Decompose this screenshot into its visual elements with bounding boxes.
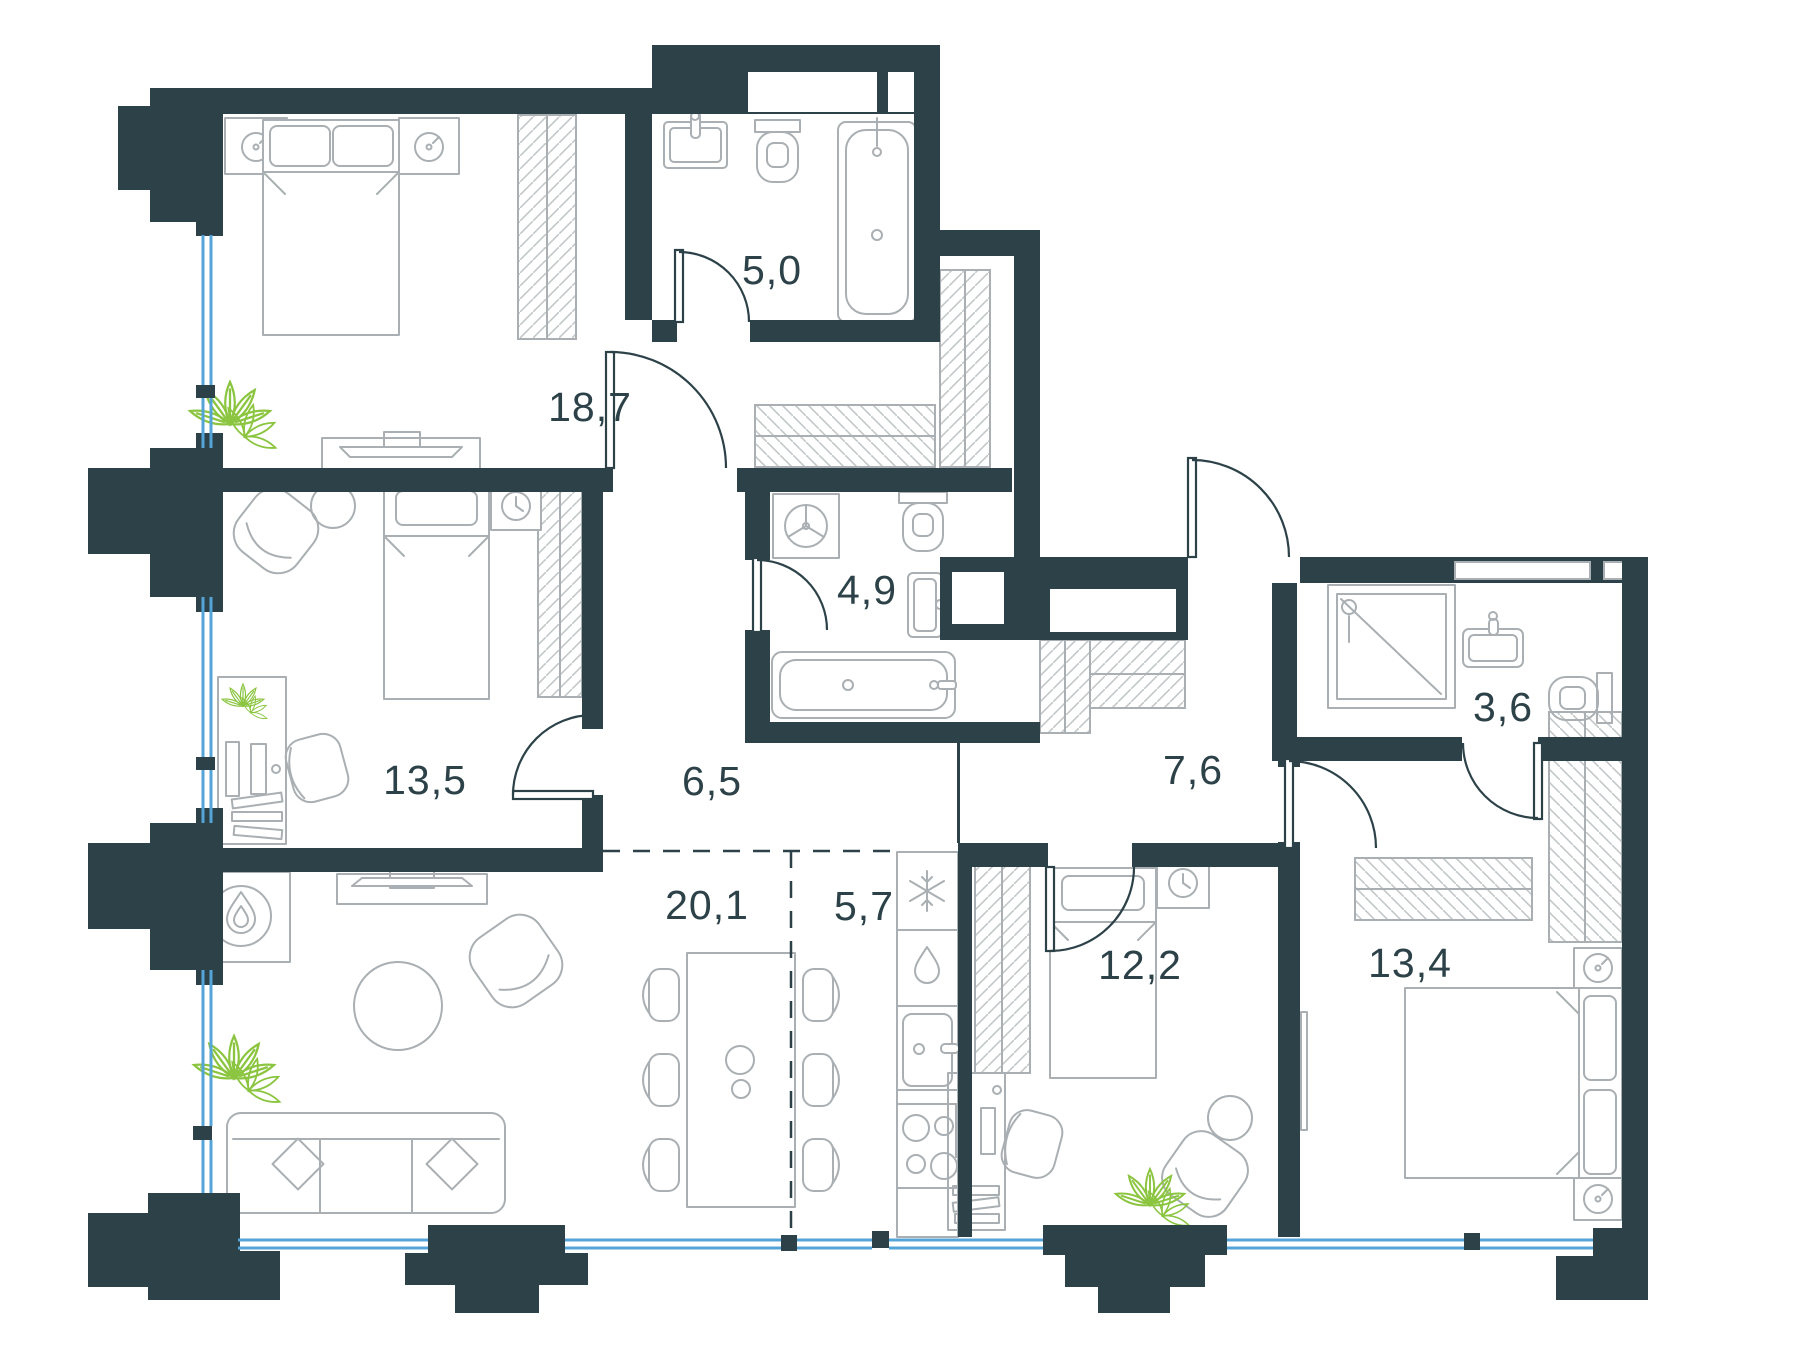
pillar xyxy=(88,433,223,612)
tv-dresser xyxy=(337,868,487,904)
dining-table xyxy=(687,953,795,1207)
wardrobe-master-closet xyxy=(755,270,990,467)
room-area-label-bedroom-right: 13,4 xyxy=(1368,940,1452,986)
bathtub-icon xyxy=(772,652,956,718)
coffee-table xyxy=(354,962,442,1050)
plant-icon xyxy=(1115,1169,1201,1233)
toilet-icon xyxy=(899,492,947,551)
room-area-label-bathroom-guest: 3,6 xyxy=(1473,684,1533,730)
bathroom-guest-fixtures xyxy=(1328,585,1612,723)
door-bathroom-main xyxy=(745,552,827,638)
room-area-label-bedroom-left: 13,5 xyxy=(383,757,467,803)
bed-double xyxy=(263,120,399,335)
bedroom-right-furniture xyxy=(1301,948,1622,1220)
pillar xyxy=(118,88,223,236)
room-area-label-bedroom-middle: 12,2 xyxy=(1098,942,1182,988)
door-bedroom-left xyxy=(513,715,603,802)
room-area-label-bathroom-main: 4,9 xyxy=(837,567,897,613)
door-bedroom-right xyxy=(1278,759,1376,848)
door-entrance xyxy=(1182,458,1306,583)
bed-double xyxy=(1405,988,1622,1178)
room-area-label-living-room: 20,1 xyxy=(665,882,749,928)
bedroom-left-furniture xyxy=(218,479,541,844)
floor-plan-canvas: 18,7 5,0 4,9 13,5 6,5 7,6 3,6 20,1 5,7 1… xyxy=(0,0,1800,1350)
wardrobe-hallway xyxy=(1040,640,1185,733)
sofa xyxy=(227,1113,505,1213)
kitchen-fixtures xyxy=(897,852,959,1237)
washing-machine-icon xyxy=(773,494,839,558)
side-table xyxy=(1208,1096,1252,1140)
desk-chair xyxy=(282,730,353,806)
toilet-icon xyxy=(755,120,800,182)
sink-icon xyxy=(1463,612,1523,667)
room-area-label-bathroom-ensuite: 5,0 xyxy=(742,247,802,293)
pillar xyxy=(405,1225,588,1313)
room-area-label-hallway-inner: 6,5 xyxy=(682,758,742,804)
pillar xyxy=(88,808,223,985)
nightstand xyxy=(1574,948,1622,988)
pillar xyxy=(1043,1225,1227,1313)
wardrobe-bedroom-left xyxy=(538,485,582,697)
tv-icon xyxy=(1301,1012,1307,1130)
bed-single xyxy=(384,483,489,699)
plant-icon xyxy=(193,1036,294,1110)
window-left xyxy=(203,235,211,1193)
wardrobe-master-strip xyxy=(518,115,576,339)
door-bathroom-guest xyxy=(1456,737,1544,819)
wardrobe-bedroom-middle xyxy=(975,858,1030,1073)
room-area-label-bedroom-master: 18,7 xyxy=(548,384,632,430)
desk-chair xyxy=(998,1106,1067,1182)
shelves xyxy=(232,793,283,840)
floor-plan-svg: 18,7 5,0 4,9 13,5 6,5 7,6 3,6 20,1 5,7 1… xyxy=(0,0,1800,1350)
nightstand xyxy=(1574,1178,1622,1220)
shower-icon xyxy=(1328,585,1455,708)
sink-icon xyxy=(903,1014,959,1086)
nightstand xyxy=(399,118,459,174)
armchair-icon xyxy=(460,905,571,1016)
fridge-icon xyxy=(910,871,944,911)
bedroom-master-furniture xyxy=(189,118,480,470)
plant-icon xyxy=(221,684,274,723)
armchair-icon xyxy=(224,479,328,583)
room-area-label-kitchen: 5,7 xyxy=(834,883,894,929)
tv-dresser xyxy=(322,432,480,470)
sink-icon xyxy=(664,112,727,168)
dishwasher-icon xyxy=(915,947,939,983)
bathtub-icon xyxy=(838,118,916,322)
room-area-label-hallway-entry: 7,6 xyxy=(1163,747,1223,793)
